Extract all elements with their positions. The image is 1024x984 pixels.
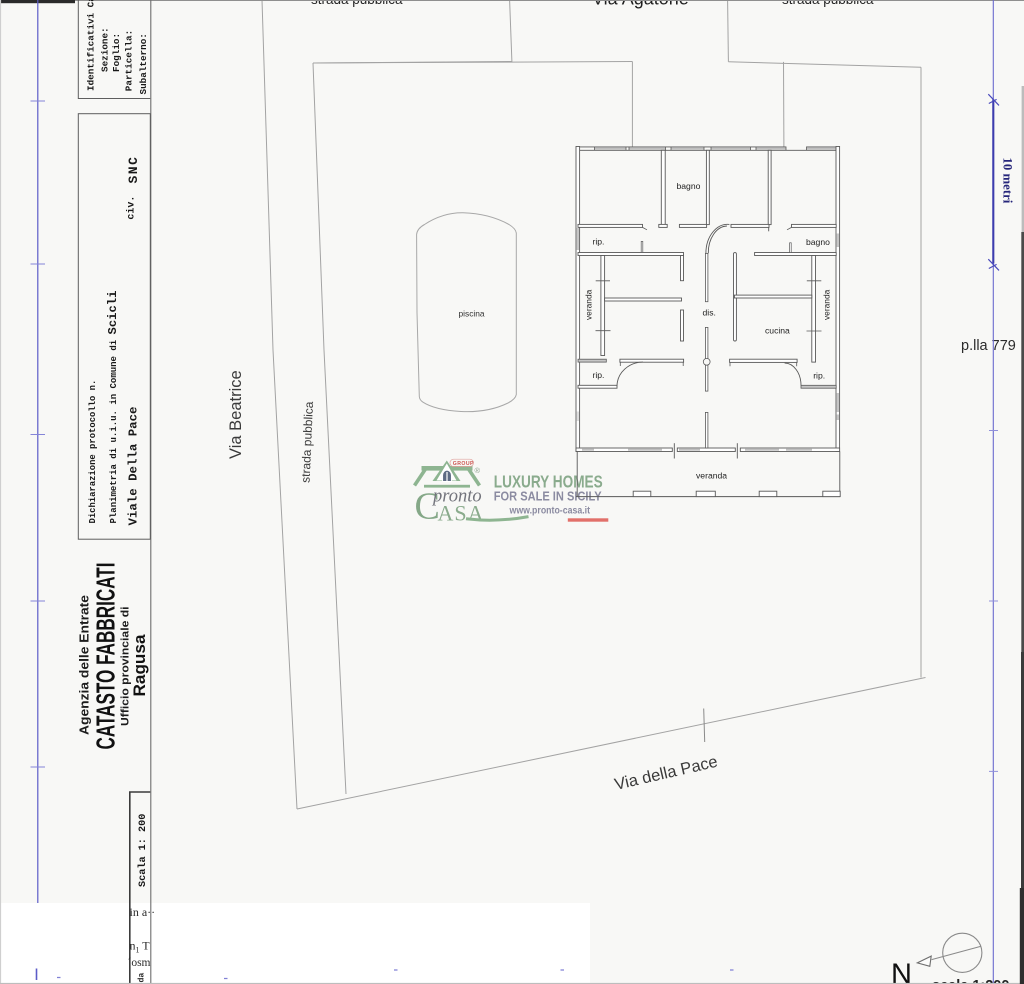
svg-text:cucina: cucina bbox=[765, 326, 790, 336]
svg-text:bagno: bagno bbox=[677, 181, 701, 191]
svg-text:www.pronto-casa.it: www.pronto-casa.it bbox=[509, 505, 591, 517]
svg-text:da: da bbox=[137, 973, 147, 983]
svg-text:strada pubblica: strada pubblica bbox=[311, 0, 403, 7]
svg-text:Via della Pace: Via della Pace bbox=[613, 753, 720, 794]
svg-text:ASA: ASA bbox=[438, 501, 485, 526]
svg-text:Viale Della Pace: Viale Della Pace bbox=[127, 407, 141, 526]
svg-text:Agenzia delle Entrate: Agenzia delle Entrate bbox=[77, 595, 92, 735]
svg-text:Dichiarazione protocollo n.: Dichiarazione protocollo n. bbox=[88, 380, 98, 524]
svg-text:piscina: piscina bbox=[459, 309, 485, 319]
svg-text:Ragusa: Ragusa bbox=[131, 634, 149, 697]
svg-text:civ.: civ. bbox=[126, 196, 138, 220]
svg-text:veranda: veranda bbox=[584, 289, 594, 320]
svg-text:Scala 1: 200: Scala 1: 200 bbox=[137, 814, 149, 887]
svg-text:n1 T: n1 T bbox=[130, 939, 151, 955]
svg-text:GROUP: GROUP bbox=[453, 461, 474, 467]
svg-text:veranda: veranda bbox=[822, 289, 832, 320]
svg-text:Via Agatone: Via Agatone bbox=[592, 0, 689, 9]
svg-text:Foglio:: Foglio: bbox=[111, 33, 122, 72]
svg-text:®: ® bbox=[475, 466, 481, 475]
svg-text:Planimetria di u.i.u. in Comun: Planimetria di u.i.u. in Comune di Scicl… bbox=[106, 291, 120, 524]
svg-text:Ufficio provinciale di: Ufficio provinciale di bbox=[120, 607, 132, 727]
svg-text:N: N bbox=[891, 959, 912, 984]
svg-text:rip.: rip. bbox=[593, 237, 605, 247]
svg-text:´oѕm: ´oѕm bbox=[128, 957, 151, 969]
svg-text:bagno: bagno bbox=[806, 237, 830, 247]
svg-text:veranda: veranda bbox=[696, 471, 727, 481]
svg-text:10 metri: 10 metri bbox=[1001, 158, 1015, 204]
svg-text:p.lla 779: p.lla 779 bbox=[961, 338, 1016, 354]
svg-text:SNC: SNC bbox=[126, 156, 141, 184]
svg-text:Particella:: Particella: bbox=[123, 30, 134, 91]
svg-text:Sezione:: Sezione: bbox=[99, 27, 110, 72]
svg-text:rip.: rip. bbox=[593, 370, 605, 380]
svg-text:strada pubblica: strada pubblica bbox=[782, 0, 874, 7]
svg-text:rip.: rip. bbox=[813, 371, 825, 381]
svg-text:strada pubblica: strada pubblica bbox=[299, 401, 317, 483]
svg-text:Via Beatrice: Via Beatrice bbox=[227, 370, 245, 459]
svg-text:dis.: dis. bbox=[703, 308, 716, 318]
svg-text:in a··: in a·· bbox=[130, 905, 156, 919]
svg-text:CATASTO FABBRICATI: CATASTO FABBRICATI bbox=[91, 563, 121, 750]
svg-text:Identificativi Catastali: Identificativi Catastali bbox=[86, 0, 97, 91]
svg-text:Subalterno:: Subalterno: bbox=[138, 33, 149, 94]
